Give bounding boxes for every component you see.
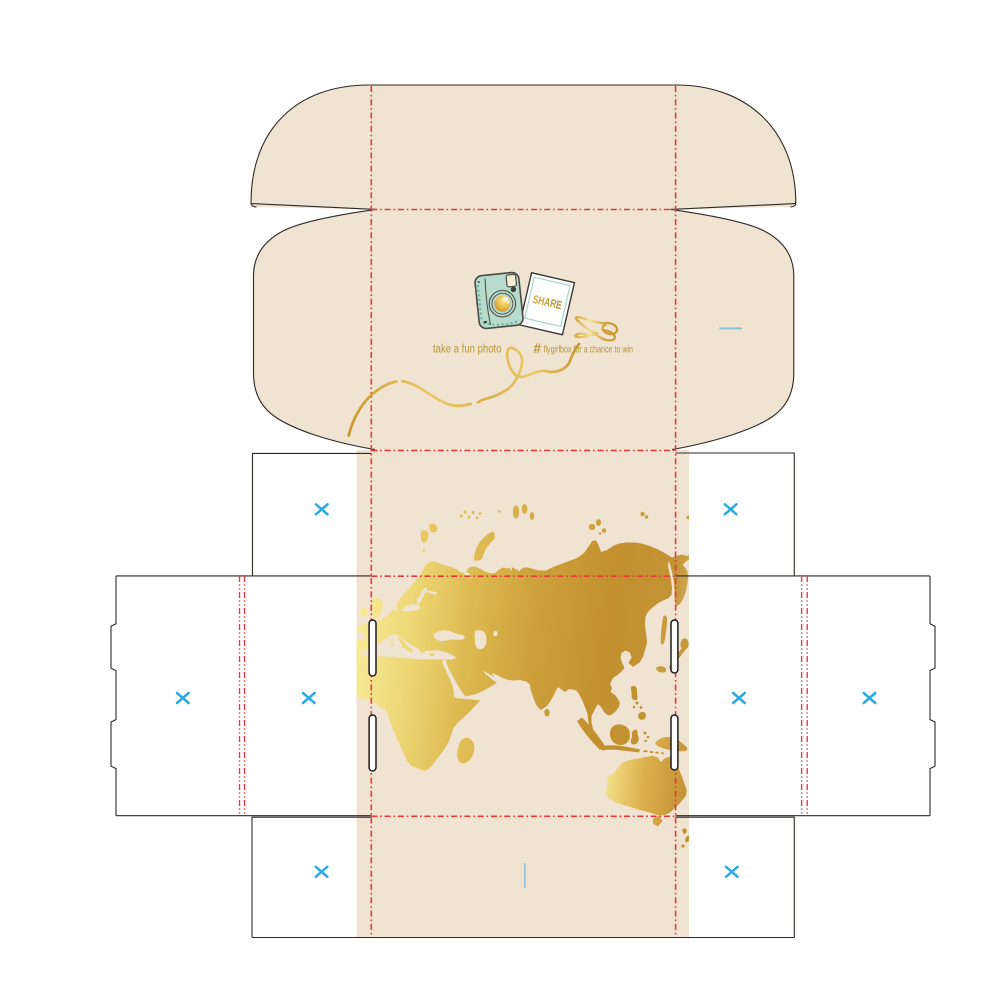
svg-text:take a fun photo: take a fun photo <box>433 344 502 356</box>
svg-text:#: # <box>534 341 542 356</box>
svg-text:flygirlbox for a chance to win: flygirlbox for a chance to win <box>544 344 634 356</box>
